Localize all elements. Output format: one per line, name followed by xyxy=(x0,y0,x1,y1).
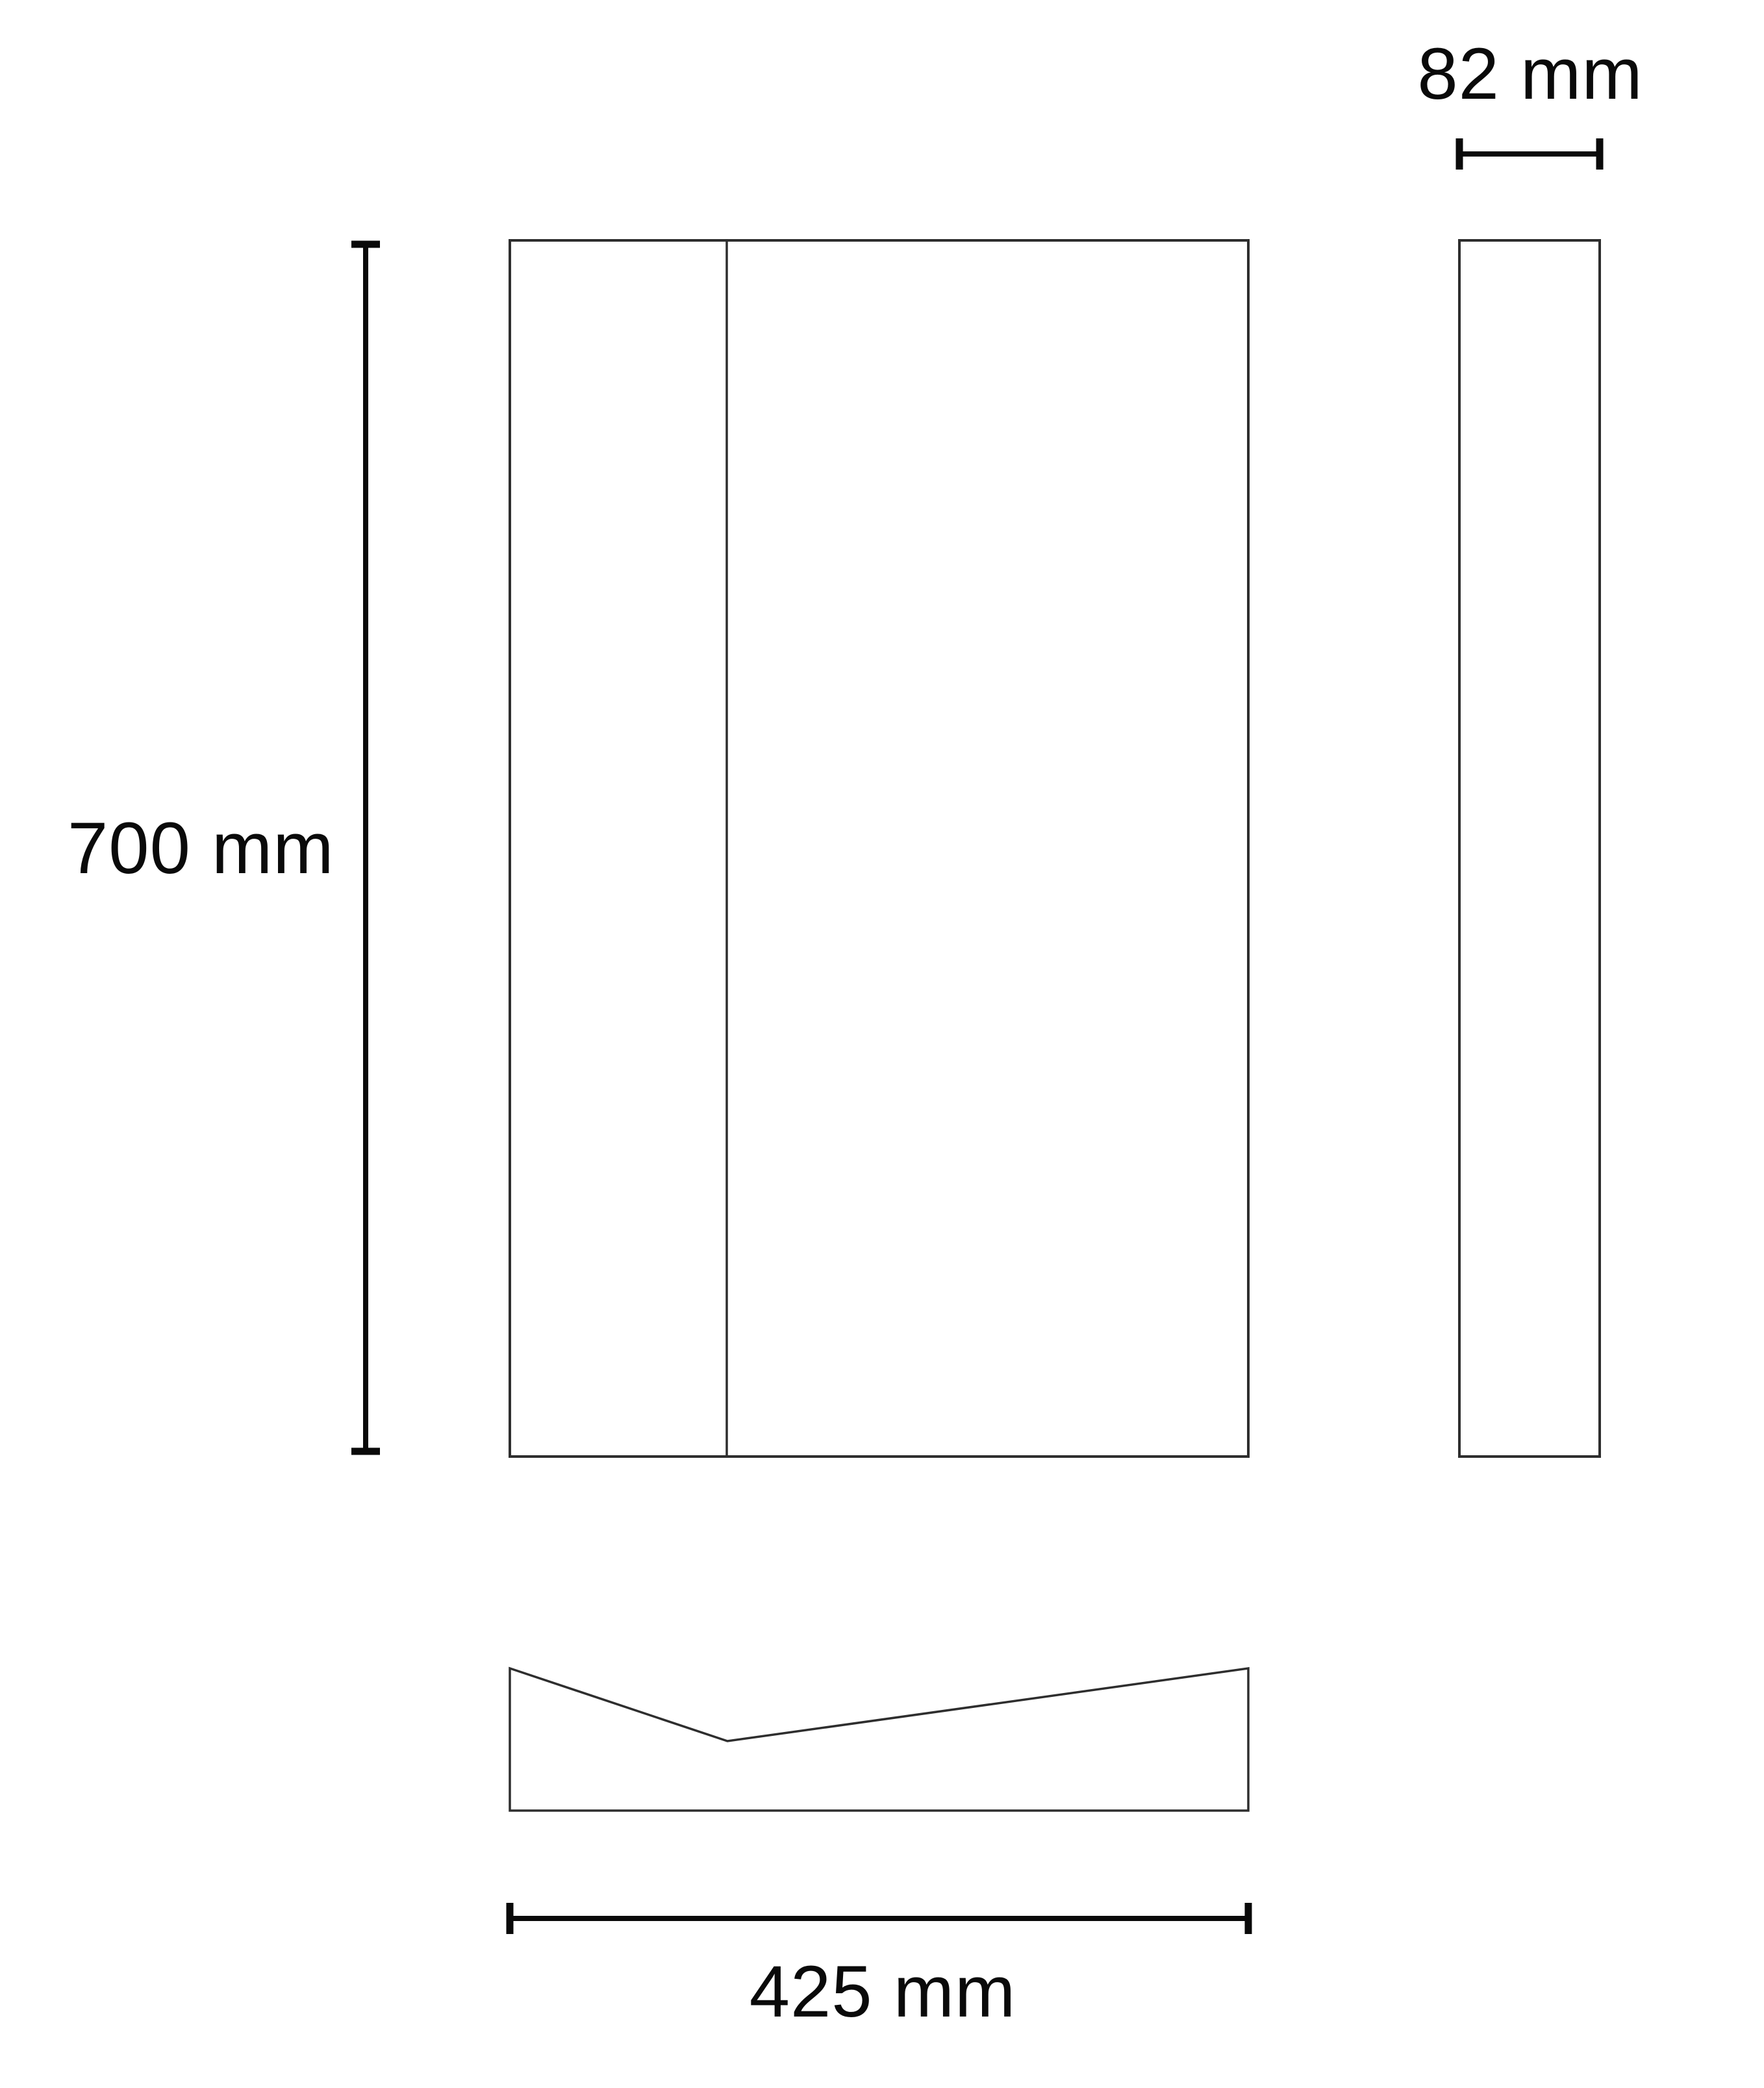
depth-dimension-label: 82 mm xyxy=(1368,22,1693,126)
depth-dimension-line xyxy=(1459,138,1600,170)
drawing-canvas: 700 mm 82 mm 425 mm xyxy=(0,0,1764,2088)
width-dimension-line xyxy=(510,1903,1248,1934)
height-dimension-line xyxy=(351,244,380,1451)
dimension-drawing xyxy=(0,0,1764,2088)
height-dimension-label: 700 mm xyxy=(68,796,340,900)
profile-view-outline xyxy=(510,1668,1248,1811)
front-view-outline xyxy=(510,240,1248,1457)
width-dimension-label: 425 mm xyxy=(720,1940,1045,2044)
side-view-outline xyxy=(1459,240,1600,1457)
